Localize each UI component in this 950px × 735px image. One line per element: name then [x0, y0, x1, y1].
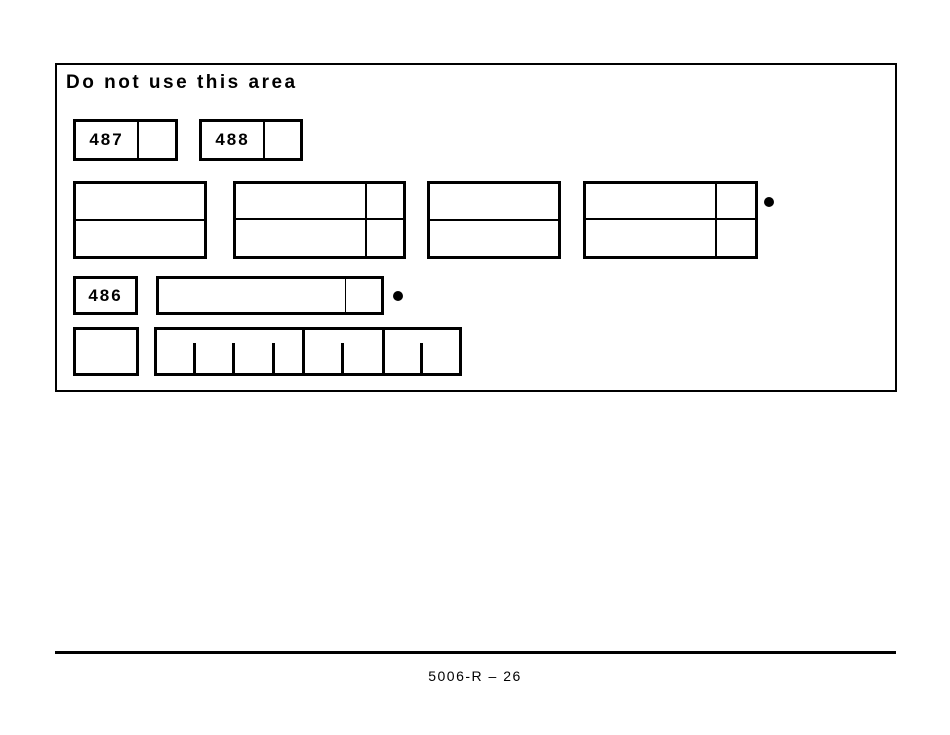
tick-mark — [272, 343, 275, 373]
keying-box-2-cents-bottom — [367, 220, 403, 256]
keying-box-2-amount-top — [236, 184, 367, 220]
bullet-dot-icon — [393, 291, 403, 301]
segment-divider — [302, 330, 305, 373]
keying-box-1-bottom-cell — [76, 221, 204, 256]
segment-divider — [382, 330, 385, 373]
keying-box-486-amount-cell — [159, 279, 346, 312]
blank-keying-box — [73, 327, 139, 376]
keying-box-4 — [583, 181, 758, 259]
keying-box-486-amount — [156, 276, 384, 315]
tick-mark — [341, 343, 344, 373]
keying-box-486-cents-cell — [346, 279, 381, 312]
keying-box-1-top-cell — [76, 184, 204, 221]
tick-mark — [232, 343, 235, 373]
keying-box-2-cents-top — [367, 184, 403, 220]
keying-box-1 — [73, 181, 207, 259]
segmented-keying-box — [154, 327, 462, 376]
keying-box-3-top-cell — [430, 184, 558, 221]
keying-box-3 — [427, 181, 561, 259]
code-entry-cell-488 — [265, 122, 300, 158]
footer-page-number: 5006-R – 26 — [0, 668, 950, 684]
keying-box-4-cents-top — [717, 184, 755, 220]
code-label-488: 488 — [202, 122, 265, 158]
code-box-488: 488 — [199, 119, 303, 161]
keying-box-3-bottom-cell — [430, 221, 558, 256]
tick-mark — [420, 343, 423, 373]
keying-box-4-amount-bottom — [586, 220, 717, 256]
keying-box-2-amount-bottom — [236, 220, 367, 256]
code-entry-cell-487 — [139, 122, 175, 158]
code-box-486: 486 — [73, 276, 138, 315]
tick-mark — [193, 343, 196, 373]
keying-box-2 — [233, 181, 406, 259]
keying-box-4-cents-bottom — [717, 220, 755, 256]
bullet-dot-icon — [764, 197, 774, 207]
footer-rule — [55, 651, 896, 654]
code-label-487: 487 — [76, 122, 139, 158]
do-not-use-title: Do not use this area — [66, 72, 298, 94]
keying-box-4-amount-top — [586, 184, 717, 220]
do-not-use-area-box: Do not use this area 487 488 486 — [55, 63, 897, 392]
code-label-486: 486 — [76, 279, 135, 312]
code-box-487: 487 — [73, 119, 178, 161]
